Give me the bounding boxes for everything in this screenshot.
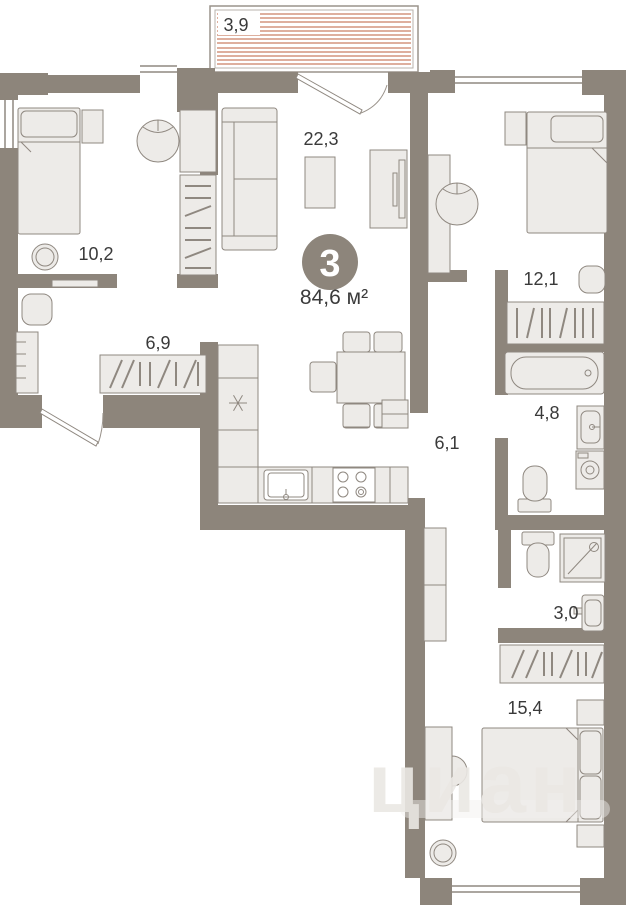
wc-furniture: 3,0 xyxy=(522,532,605,631)
shower xyxy=(560,534,605,582)
bathroom-sink xyxy=(577,406,604,449)
tv xyxy=(399,160,405,218)
kitchen-sink xyxy=(264,470,308,500)
stool xyxy=(430,840,456,866)
shoe-shelf xyxy=(16,332,38,393)
watermark-text: циан xyxy=(368,736,585,830)
living-room-furniture: 22,3 xyxy=(222,108,407,250)
cabinet xyxy=(180,110,216,172)
nightstand xyxy=(82,110,103,143)
bathtub xyxy=(505,352,604,394)
single-bed-right xyxy=(527,112,607,233)
corridor-label: 6,1 xyxy=(434,433,459,453)
bedroom-left-label: 10,2 xyxy=(78,244,113,264)
stool xyxy=(32,244,58,270)
bedroom-left-furniture: 10,2 xyxy=(18,108,216,287)
dining-chair xyxy=(343,332,370,352)
bedroom-master-label: 15,4 xyxy=(507,698,542,718)
rooms-count: 3 xyxy=(319,243,340,285)
hallway-label: 6,9 xyxy=(145,333,170,353)
entrance-door xyxy=(40,409,103,446)
bathroom-furniture: 4,8 xyxy=(505,352,604,512)
pouf xyxy=(579,266,605,293)
pouf xyxy=(22,294,52,325)
balcony: 3,9 xyxy=(210,6,418,72)
wardrobe-hangers xyxy=(180,175,216,275)
bedroom-right-furniture: 12,1 xyxy=(428,112,607,344)
window-bedroom-left-top xyxy=(140,63,177,93)
kitchen-counter xyxy=(218,467,408,503)
dining-chair xyxy=(343,404,370,428)
coffee-table xyxy=(305,157,335,208)
bathroom-label: 4,8 xyxy=(534,403,559,423)
wc-label: 3,0 xyxy=(553,603,578,623)
tv-stand xyxy=(370,150,407,228)
balcony-door xyxy=(296,74,387,114)
balcony-label: 3,9 xyxy=(223,15,248,35)
corridor: 6,1 xyxy=(424,433,460,641)
dining-chair xyxy=(310,362,336,392)
corridor-cabinet-small xyxy=(382,400,408,428)
sofa xyxy=(222,108,277,250)
armchair xyxy=(137,120,179,162)
dining-table xyxy=(337,352,405,403)
hallway-furniture: 6,9 xyxy=(16,294,206,393)
stove xyxy=(333,468,375,502)
floorplan-page: 3,9 xyxy=(0,0,626,910)
desk-chair xyxy=(436,183,478,225)
wardrobe-hangers xyxy=(500,645,604,683)
nightstand xyxy=(505,112,526,145)
floorplan-drawing: 3,9 xyxy=(0,0,626,910)
total-area-label: 84,6 м² xyxy=(300,286,368,309)
kitchen-furniture xyxy=(218,332,408,503)
window-bedroom-master-bottom xyxy=(452,878,580,905)
window-bedroom-left-side xyxy=(0,100,18,148)
bedroom-right-label: 12,1 xyxy=(523,269,558,289)
area-badge: 3 84,6 м² xyxy=(300,234,368,309)
corridor-cabinets xyxy=(424,528,446,641)
toilet xyxy=(522,532,554,577)
wall-niche-shelf xyxy=(52,280,98,287)
wardrobe-hangers xyxy=(507,302,604,344)
window-bedroom-right-top xyxy=(455,70,582,93)
kitchen-cabinets-fridge xyxy=(218,345,258,467)
washing-machine xyxy=(576,451,604,489)
single-bed xyxy=(18,108,80,234)
nightstand xyxy=(577,700,604,725)
watermark: циан xyxy=(368,736,610,830)
toilet xyxy=(518,466,551,512)
wardrobe-hangers xyxy=(100,355,206,393)
living-room-label: 22,3 xyxy=(303,129,338,149)
dining-chair xyxy=(374,332,402,352)
